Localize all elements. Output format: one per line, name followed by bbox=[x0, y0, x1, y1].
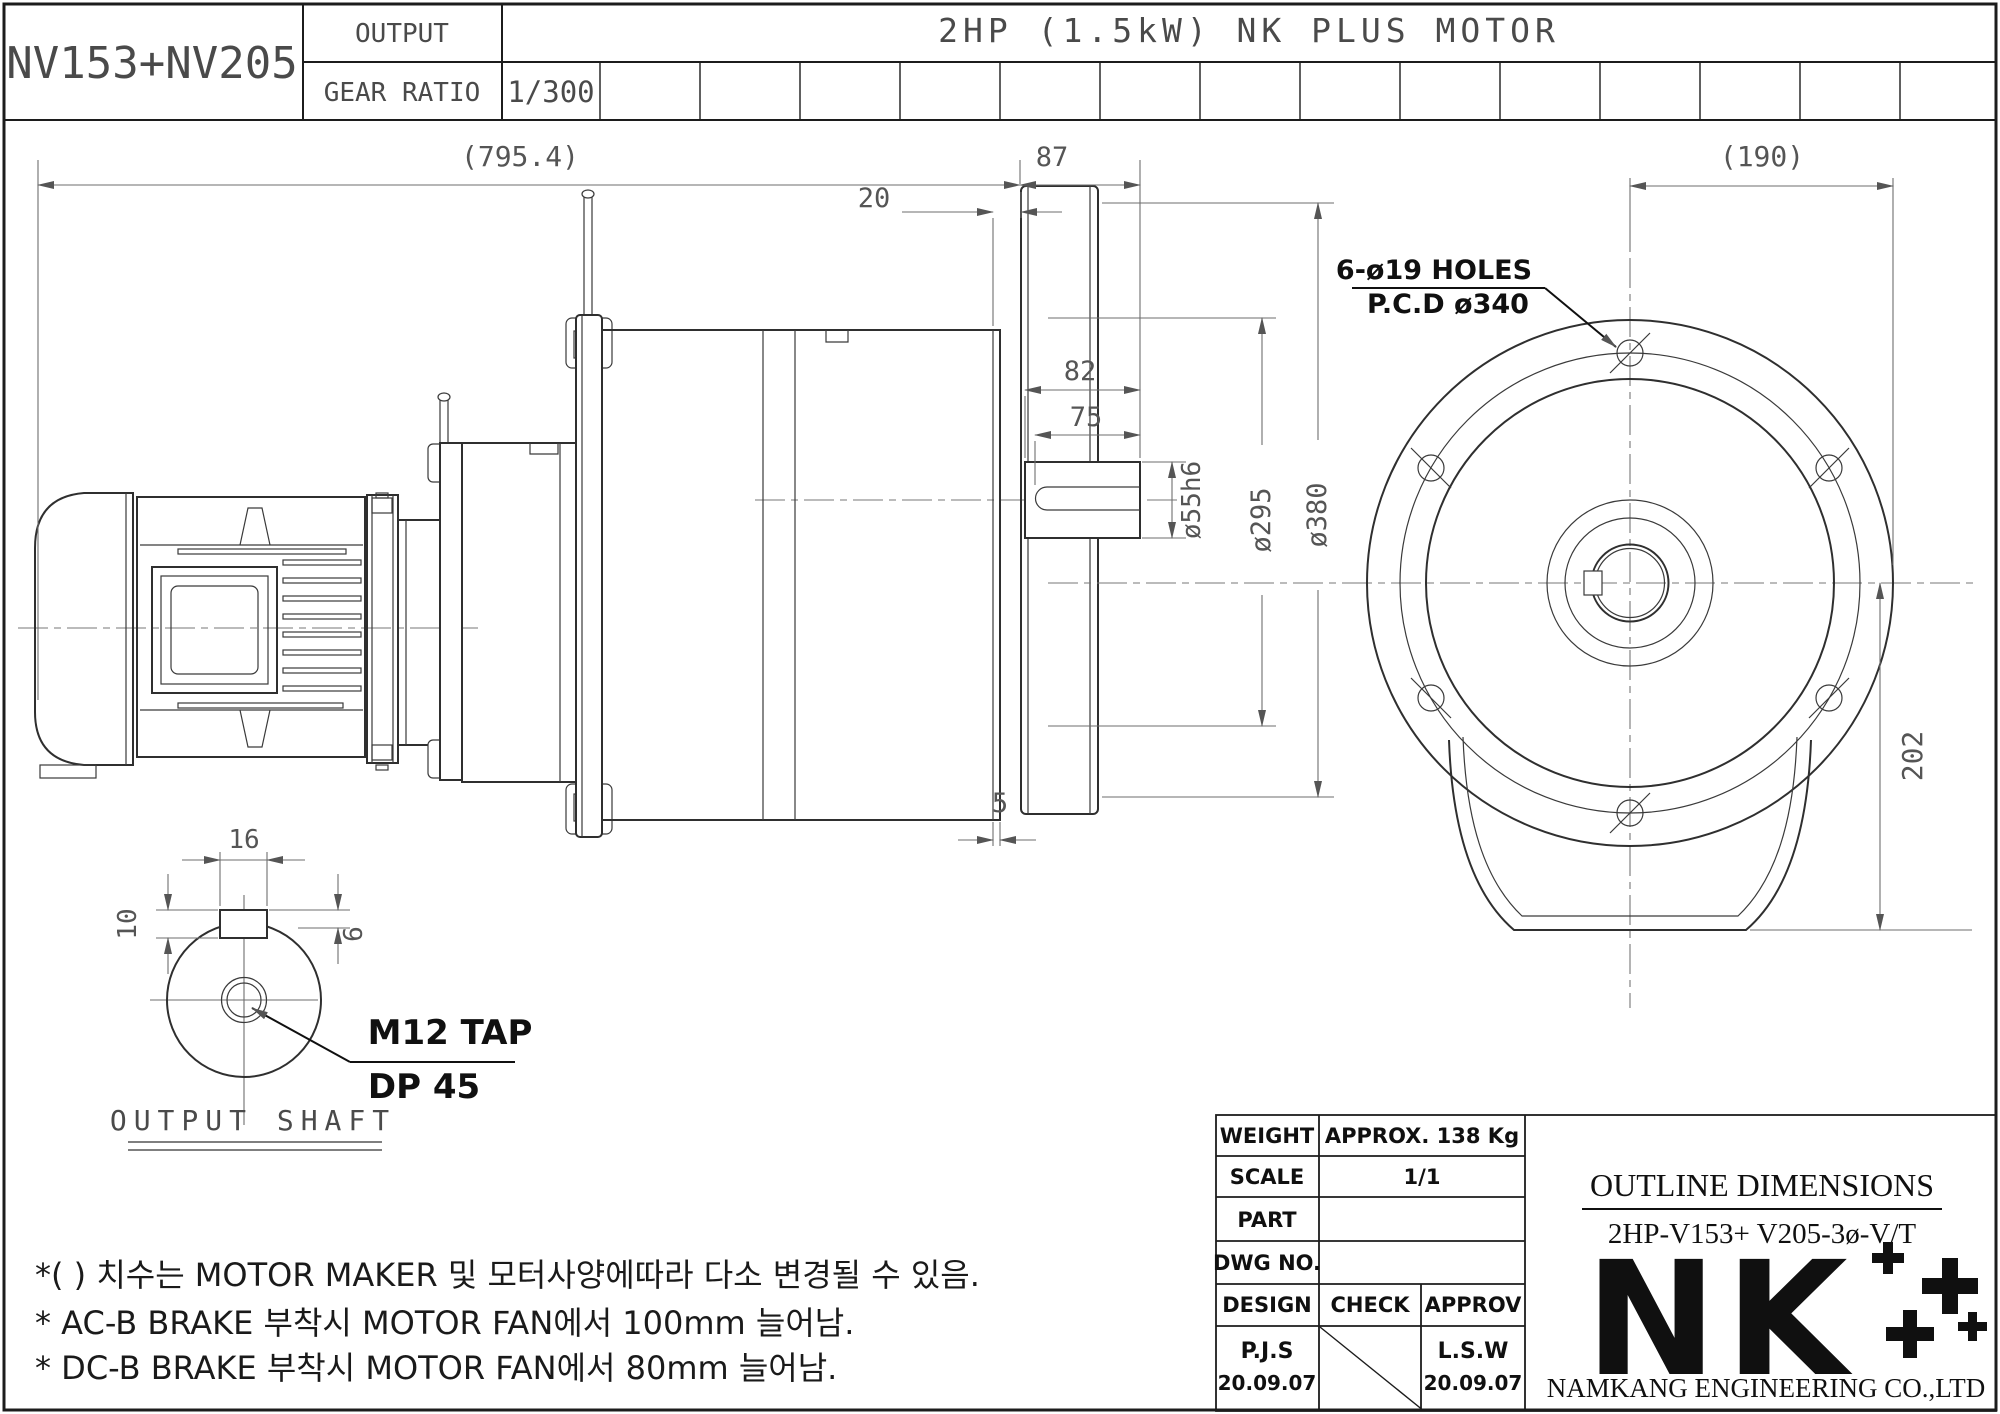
check-cell-diagonal bbox=[1320, 1327, 1424, 1411]
dim-190: (190) bbox=[1720, 140, 1804, 173]
design-date: 20.09.07 bbox=[1218, 1371, 1317, 1395]
dim-5: 5 bbox=[992, 788, 1008, 819]
dim-20: 20 bbox=[858, 183, 891, 214]
motor-stator bbox=[137, 497, 365, 757]
gearbox-stage1 bbox=[428, 393, 576, 782]
dim-boss-dia: ø295 bbox=[1246, 487, 1277, 552]
notes: *( ) 치수는 MOTOR MAKER 및 모터사양에따라 다소 변경될 수 … bbox=[35, 1256, 980, 1387]
front-view: (190) 202 6-ø19 HOLES P.C.D ø340 bbox=[1048, 140, 1978, 1008]
gear-ratio-label: GEAR RATIO bbox=[324, 78, 481, 108]
drawing-sheet: NV153+NV205 OUTPUT GEAR RATIO 1/300 2HP … bbox=[0, 0, 2000, 1414]
drawing-title: 2HP (1.5kW) NK PLUS MOTOR bbox=[938, 11, 1560, 50]
dim-flange-dia: ø380 bbox=[1302, 482, 1333, 547]
tap-note-line2: DP 45 bbox=[368, 1067, 480, 1107]
cad-drawing: NV153+NV205 OUTPUT GEAR RATIO 1/300 2HP … bbox=[0, 0, 2000, 1414]
bore-keyway bbox=[1584, 571, 1602, 595]
company-block: OUTLINE DIMENSIONS 2HP-V153+ V205-3ø-V/T… bbox=[1547, 1167, 1987, 1412]
title-block-cells: WEIGHT APPROX. 138 Kg SCALE 1/1 PART DWG… bbox=[1213, 1124, 1522, 1395]
model-code: NV153+NV205 bbox=[6, 38, 297, 89]
holes-note-line2: P.C.D ø340 bbox=[1367, 289, 1529, 320]
side-view: (795.4) 87 20 82 75 ø55h6 ø295 bbox=[18, 140, 1334, 846]
terminal-box bbox=[152, 567, 277, 693]
weight-value: APPROX. 138 Kg bbox=[1325, 1124, 1519, 1148]
key-section bbox=[220, 910, 267, 938]
dim-16: 16 bbox=[228, 825, 259, 855]
part-label: PART bbox=[1237, 1208, 1297, 1232]
dim-10: 10 bbox=[113, 908, 143, 939]
adapter-ring bbox=[398, 520, 440, 745]
nk-logo-plus-marks bbox=[1872, 1242, 1987, 1358]
tap-note-line1: M12 TAP bbox=[368, 1013, 533, 1053]
title-block: WEIGHT APPROX. 138 Kg SCALE 1/1 PART DWG… bbox=[1213, 1115, 1996, 1412]
output-shaft bbox=[1025, 462, 1140, 538]
dim-shaft-dia: ø55h6 bbox=[1177, 461, 1207, 539]
dim-overall: (795.4) bbox=[461, 140, 579, 173]
approver-name: L.S.W bbox=[1438, 1339, 1509, 1364]
motor-fan-cover bbox=[35, 493, 133, 778]
approv-label: APPROV bbox=[1425, 1293, 1522, 1317]
note-line-3: * DC-B BRAKE 부착시 MOTOR FAN에서 80mm 늘어남. bbox=[35, 1349, 837, 1387]
gear-ratio-value: 1/300 bbox=[507, 75, 594, 109]
company-name: NAMKANG ENGINEERING CO.,LTD bbox=[1547, 1373, 1985, 1403]
weight-label: WEIGHT bbox=[1220, 1124, 1315, 1148]
gearbox-stage2 bbox=[566, 190, 1000, 837]
designer-name: P.J.S bbox=[1241, 1339, 1294, 1364]
note-line-2: * AC-B BRAKE 부착시 MOTOR FAN에서 100mm 늘어남. bbox=[35, 1304, 854, 1342]
motor-flange bbox=[367, 493, 398, 770]
scale-label: SCALE bbox=[1230, 1165, 1305, 1189]
dim-75: 75 bbox=[1070, 402, 1103, 433]
cooling-fins bbox=[283, 560, 361, 691]
holes-note-line1: 6-ø19 HOLES bbox=[1336, 255, 1532, 286]
dim-6: 6 bbox=[339, 926, 369, 942]
scale-value: 1/1 bbox=[1404, 1165, 1441, 1189]
approve-date: 20.09.07 bbox=[1424, 1371, 1523, 1395]
output-flange bbox=[1021, 186, 1140, 814]
eyebolt-rod bbox=[584, 194, 592, 318]
dwg-no-label: DWG NO. bbox=[1213, 1251, 1321, 1275]
output-shaft-detail: 16 10 6 M12 TAP DP 45 OUTPUT SHAFT bbox=[110, 825, 533, 1150]
check-label: CHECK bbox=[1330, 1293, 1410, 1317]
note-line-1: *( ) 치수는 MOTOR MAKER 및 모터사양에따라 다소 변경될 수 … bbox=[35, 1256, 980, 1294]
dim-87: 87 bbox=[1036, 142, 1069, 173]
output-label: OUTPUT bbox=[355, 19, 449, 49]
detail-title: OUTPUT SHAFT bbox=[110, 1104, 396, 1137]
header-empty-cells bbox=[600, 62, 1900, 120]
dim-82: 82 bbox=[1064, 356, 1097, 387]
dim-202: 202 bbox=[1896, 731, 1929, 782]
design-label: DESIGN bbox=[1222, 1293, 1312, 1317]
doc-title: OUTLINE DIMENSIONS bbox=[1590, 1167, 1934, 1203]
